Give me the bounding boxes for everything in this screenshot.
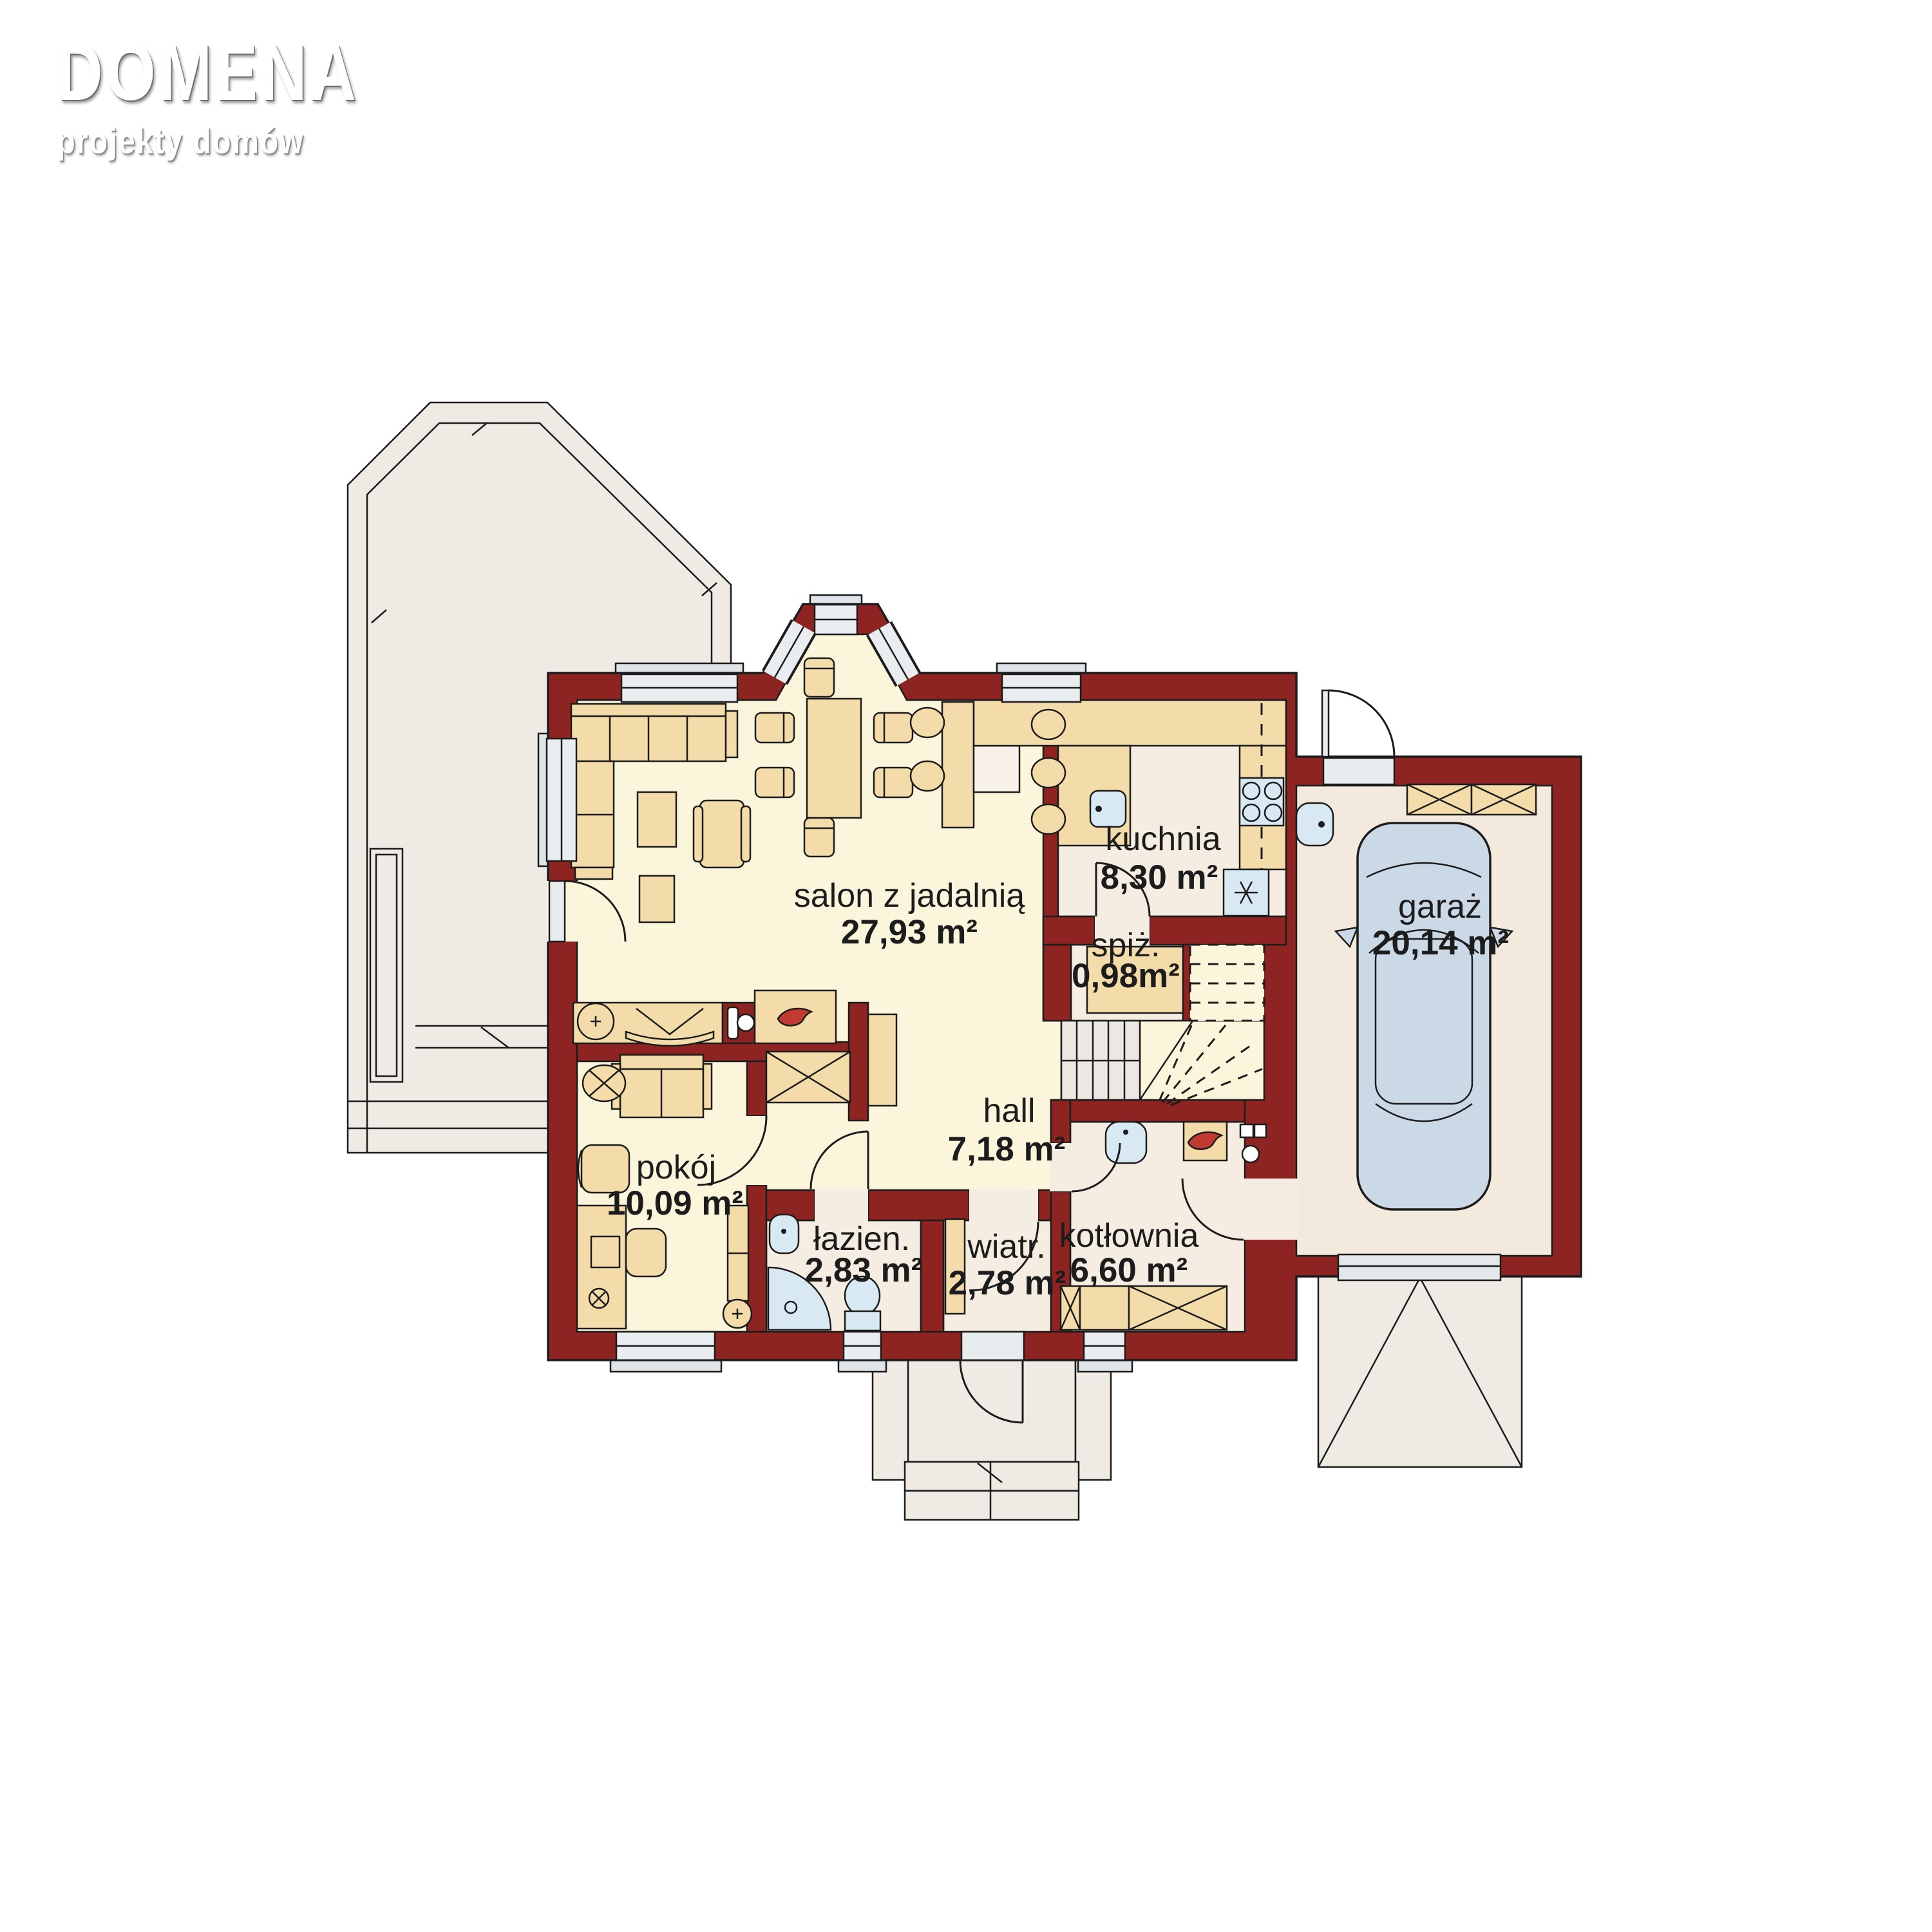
bar-stool xyxy=(911,761,944,791)
bar-stool xyxy=(1032,710,1065,739)
kitchen-counter-top xyxy=(974,700,1286,746)
salon-top-window xyxy=(621,674,737,702)
armchair-salon xyxy=(694,800,750,867)
salon-left-window xyxy=(547,739,576,861)
kitchen-window xyxy=(1002,674,1081,702)
room-label-kotlownia: kotłownia xyxy=(1059,1217,1199,1255)
sofa-pokoj xyxy=(612,1055,712,1117)
desk-chair xyxy=(626,1229,666,1276)
room-label-garaz: garaż xyxy=(1398,888,1482,925)
tv-cabinet xyxy=(573,1003,723,1046)
room-label-pokoj: pokój xyxy=(636,1149,716,1186)
page: DOMENA projekty domów xyxy=(0,0,1932,1932)
room-label-wiatrolap: wiatr. xyxy=(967,1228,1045,1265)
room-area-pokoj: 10,09 m² xyxy=(607,1184,743,1222)
porch-step-1 xyxy=(905,1462,1079,1491)
room-area-lazienka: 2,83 m² xyxy=(805,1251,923,1289)
room-area-kotlownia: 6,60 m² xyxy=(1070,1251,1188,1289)
room-area-spizarnia: 0,98m² xyxy=(1072,957,1180,995)
bay-apex-window xyxy=(815,605,857,634)
porch-pillar-right xyxy=(1075,1360,1111,1480)
wardrobe-x-icon xyxy=(766,1052,850,1103)
dining-table xyxy=(807,699,861,818)
ottoman xyxy=(639,876,674,922)
boiler-flame-icon xyxy=(1184,1122,1227,1160)
pokoj-window xyxy=(616,1332,715,1360)
room-label-hall: hall xyxy=(983,1092,1036,1130)
kotlownia-window xyxy=(1084,1332,1125,1360)
garage-side-door xyxy=(1322,690,1394,784)
desk xyxy=(577,1206,626,1329)
room-area-kuchnia: 8,30 m² xyxy=(1101,858,1218,896)
bar-stool xyxy=(1032,804,1065,834)
garage-sink-icon xyxy=(1296,803,1333,846)
kotlownia-cabinets xyxy=(1061,1286,1227,1330)
lazienka-window xyxy=(844,1332,881,1360)
entrance-porch xyxy=(873,1360,1111,1520)
fridge-snowflake-icon xyxy=(1224,869,1269,916)
garage-cabinets xyxy=(1407,784,1536,815)
porch-step-2 xyxy=(905,1491,1079,1520)
room-area-wiatrolap: 2,78 m² xyxy=(949,1264,1066,1302)
bar-stool xyxy=(1032,758,1065,788)
utility-sink-icon xyxy=(1106,1122,1146,1163)
wardrobe-pokoj xyxy=(723,1206,752,1328)
garage-door-strip xyxy=(1338,1255,1501,1280)
room-area-garaz: 20,14 m² xyxy=(1372,924,1509,962)
room-area-salon: 27,93 m² xyxy=(841,913,978,951)
driveway xyxy=(1318,1276,1522,1467)
room-area-hall: 7,18 m² xyxy=(948,1130,1066,1168)
bathroom-sink-icon xyxy=(770,1215,799,1253)
hall-cabinet xyxy=(868,1014,896,1106)
porch-pillar-left xyxy=(873,1360,908,1480)
car-icon xyxy=(1336,823,1512,1209)
room-label-salon: salon z jadalnią xyxy=(794,877,1025,914)
round-table xyxy=(583,1065,625,1101)
stove-icon xyxy=(1240,778,1283,826)
bar-stool xyxy=(911,708,944,737)
room-label-kuchnia: kuchnia xyxy=(1105,820,1220,858)
coffee-table xyxy=(638,792,676,847)
